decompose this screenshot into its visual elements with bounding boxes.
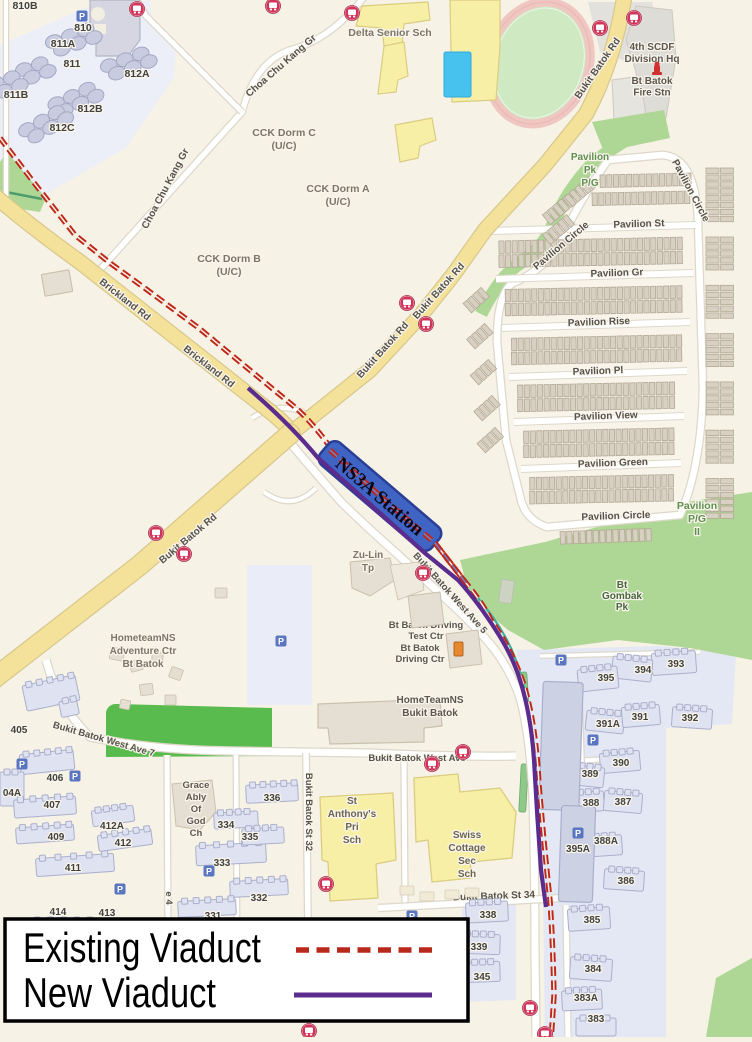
svg-text:388: 388 xyxy=(583,798,600,809)
svg-text:333: 333 xyxy=(214,858,231,869)
svg-text:P: P xyxy=(575,829,581,839)
svg-text:Fire Stn: Fire Stn xyxy=(633,88,670,99)
svg-text:Cottage: Cottage xyxy=(448,843,486,854)
svg-text:P/G: P/G xyxy=(688,513,706,525)
svg-text:P: P xyxy=(79,12,85,22)
svg-text:387: 387 xyxy=(615,797,632,808)
svg-text:810: 810 xyxy=(74,22,92,34)
svg-text:810B: 810B xyxy=(12,0,38,12)
svg-text:Pavilion: Pavilion xyxy=(677,500,717,512)
svg-text:Of: Of xyxy=(191,804,202,815)
svg-text:Gombak: Gombak xyxy=(602,591,642,602)
svg-text:Ch: Ch xyxy=(190,828,203,839)
svg-text:395A: 395A xyxy=(566,844,590,855)
svg-text:339: 339 xyxy=(471,942,488,953)
svg-text:336: 336 xyxy=(264,793,281,804)
svg-text:II: II xyxy=(694,526,700,538)
svg-text:811B: 811B xyxy=(4,89,29,101)
svg-text:395: 395 xyxy=(598,673,615,684)
svg-text:New Viaduct: New Viaduct xyxy=(23,969,216,1016)
svg-text:CCK Dorm C: CCK Dorm C xyxy=(252,127,316,139)
svg-text:811A: 811A xyxy=(51,38,76,50)
svg-text:Division Hq: Division Hq xyxy=(624,54,679,65)
svg-text:407: 407 xyxy=(44,800,61,811)
svg-text:Sch: Sch xyxy=(343,835,361,846)
svg-text:Delta Senior Sch: Delta Senior Sch xyxy=(348,27,431,39)
svg-text:Pk: Pk xyxy=(584,165,597,176)
svg-text:Pri: Pri xyxy=(345,822,359,833)
svg-text:383A: 383A xyxy=(574,993,598,1004)
svg-text:Ably: Ably xyxy=(186,792,207,803)
svg-text:Pk: Pk xyxy=(616,602,629,613)
svg-text:411: 411 xyxy=(65,863,82,874)
svg-text:Bt Batok: Bt Batok xyxy=(122,659,164,670)
svg-text:Bt Batok: Bt Batok xyxy=(631,76,673,87)
svg-text:HomeTeamNS: HomeTeamNS xyxy=(396,695,463,706)
svg-text:P: P xyxy=(558,656,564,666)
svg-text:CCK Dorm A: CCK Dorm A xyxy=(306,183,370,195)
svg-text:Adventure Ctr: Adventure Ctr xyxy=(110,646,177,657)
svg-text:Driving Ctr: Driving Ctr xyxy=(395,654,444,665)
svg-text:P: P xyxy=(278,637,284,647)
svg-text:(U/C): (U/C) xyxy=(216,266,241,278)
svg-text:Bukit Batok West Ave: Bukit Batok West Ave xyxy=(368,753,465,764)
svg-text:384: 384 xyxy=(585,964,602,975)
svg-text:389: 389 xyxy=(582,769,599,780)
svg-text:812A: 812A xyxy=(124,68,150,80)
svg-text:338: 338 xyxy=(480,910,497,921)
svg-text:Bukit Batok: Bukit Batok xyxy=(402,708,458,719)
svg-text:Pavilion St: Pavilion St xyxy=(613,218,665,231)
svg-text:Zu-Lin: Zu-Lin xyxy=(353,550,384,561)
svg-text:Pavilion: Pavilion xyxy=(571,152,609,163)
svg-text:Pavilion Rise: Pavilion Rise xyxy=(568,316,631,329)
svg-text:394: 394 xyxy=(635,665,652,676)
svg-text:385: 385 xyxy=(584,915,601,926)
svg-text:406: 406 xyxy=(47,773,64,784)
svg-text:383: 383 xyxy=(588,1014,605,1025)
svg-text:God: God xyxy=(187,816,206,827)
svg-text:e 4: e 4 xyxy=(163,891,174,905)
svg-text:Pavilion Pl: Pavilion Pl xyxy=(572,365,623,378)
svg-text:Grace: Grace xyxy=(183,780,210,791)
svg-text:(U/C): (U/C) xyxy=(271,140,296,152)
svg-text:811: 811 xyxy=(64,58,81,70)
svg-text:Existing Viaduct: Existing Viaduct xyxy=(23,924,261,971)
svg-text:386: 386 xyxy=(618,876,635,887)
svg-text:414: 414 xyxy=(50,907,67,918)
svg-text:Bt: Bt xyxy=(617,580,628,591)
svg-text:04A: 04A xyxy=(3,788,21,799)
svg-text:Bt Batok: Bt Batok xyxy=(400,643,440,654)
svg-text:P: P xyxy=(590,736,596,746)
svg-text:Swiss: Swiss xyxy=(453,830,482,841)
svg-text:334: 334 xyxy=(218,820,235,831)
svg-text:391A: 391A xyxy=(596,719,620,730)
svg-text:Bukit Batok St 32: Bukit Batok St 32 xyxy=(303,773,314,851)
svg-text:(U/C): (U/C) xyxy=(325,196,350,208)
svg-text:335: 335 xyxy=(242,832,259,843)
svg-text:393: 393 xyxy=(668,659,685,670)
svg-text:Sec: Sec xyxy=(458,856,476,867)
svg-text:812C: 812C xyxy=(49,122,75,134)
svg-text:P: P xyxy=(117,885,123,895)
svg-text:CCK Dorm B: CCK Dorm B xyxy=(197,253,261,265)
svg-text:P: P xyxy=(206,867,212,877)
svg-text:412A: 412A xyxy=(100,821,124,832)
svg-text:Tp: Tp xyxy=(362,563,374,574)
svg-text:392: 392 xyxy=(682,713,699,724)
svg-text:Anthony's: Anthony's xyxy=(328,809,377,820)
svg-text:P: P xyxy=(19,760,25,770)
svg-text:Pavilion View: Pavilion View xyxy=(574,410,638,423)
svg-text:405: 405 xyxy=(11,725,28,736)
svg-text:388A: 388A xyxy=(594,836,618,847)
svg-text:391: 391 xyxy=(632,712,649,723)
svg-text:409: 409 xyxy=(48,832,65,843)
svg-text:332: 332 xyxy=(251,893,268,904)
svg-text:St: St xyxy=(347,796,358,807)
svg-text:HometeamNS: HometeamNS xyxy=(110,633,175,644)
svg-text:Test Ctr: Test Ctr xyxy=(408,631,443,642)
svg-text:812B: 812B xyxy=(77,103,103,115)
svg-text:P: P xyxy=(72,772,78,782)
svg-text:4th SCDF: 4th SCDF xyxy=(630,42,675,53)
svg-text:P/G: P/G xyxy=(581,178,598,189)
svg-text:Sch: Sch xyxy=(458,869,476,880)
svg-text:Pavilion Gr: Pavilion Gr xyxy=(590,267,643,280)
svg-text:345: 345 xyxy=(474,972,491,983)
svg-text:412: 412 xyxy=(115,838,132,849)
svg-text:390: 390 xyxy=(613,758,630,769)
